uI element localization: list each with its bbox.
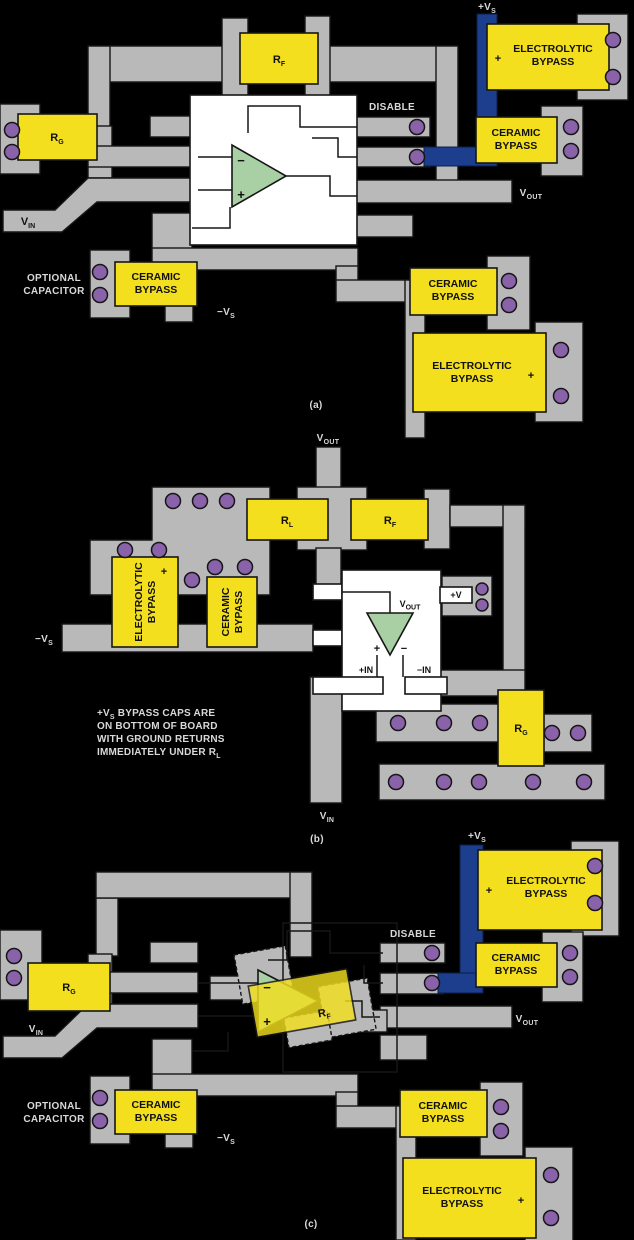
electrolytic-label-tr-c: ELECTROLYTIC — [506, 875, 586, 887]
caption-a: (a) — [309, 400, 322, 411]
noninverting-sign-b: + — [374, 643, 380, 655]
via — [606, 70, 621, 85]
via — [389, 775, 404, 790]
ceramic-label-r-c: CERAMIC — [492, 952, 541, 964]
vout-trace-a — [355, 180, 512, 203]
polarity-plus-b: + — [161, 566, 167, 578]
via — [502, 274, 517, 289]
via — [7, 949, 22, 964]
vout-trace-bottom-b — [316, 548, 341, 588]
vout-label-c: VOUT — [516, 1014, 539, 1027]
unused-pin-pad2-c — [380, 1035, 427, 1060]
note-line1: +VS BYPASS CAPS ARE — [97, 708, 215, 721]
via — [425, 946, 440, 961]
via — [476, 599, 488, 611]
neg-supply-label-a: −VS — [217, 307, 235, 320]
via — [93, 1091, 108, 1106]
neg-supply-label-b: −VS — [35, 634, 53, 647]
via — [425, 976, 440, 991]
via — [193, 494, 208, 509]
via — [93, 288, 108, 303]
neg-supply-step-horiz-a — [336, 280, 414, 302]
figure-c-board: RF − + +VS DISABLE VOUT VIN OPTIONAL CAP… — [0, 831, 619, 1240]
ic-pin-plus-in-b — [313, 677, 383, 694]
plus-v-label-b: +V — [450, 590, 461, 600]
disable-label-c: DISABLE — [390, 929, 436, 940]
via — [410, 120, 425, 135]
electrolytic-label2-br-a: BYPASS — [451, 373, 493, 385]
electrolytic-label-tr-a: ELECTROLYTIC — [513, 43, 593, 55]
caption-c: (c) — [304, 1219, 317, 1230]
ceramic-label2-r-c: BYPASS — [495, 965, 537, 977]
ic-pin-minus-in-b — [405, 677, 447, 694]
via — [5, 145, 20, 160]
via — [502, 298, 517, 313]
vout-label-a: VOUT — [520, 188, 543, 201]
via — [5, 123, 20, 138]
ceramic-label2-bl-c: BYPASS — [135, 1112, 177, 1124]
via — [410, 150, 425, 165]
ceramic-label2-r-a: BYPASS — [495, 140, 537, 152]
pcb-layout-diagram: − + +VS DISABLE VOUT OPTIONAL CAPACITOR … — [0, 0, 634, 1240]
via — [526, 775, 541, 790]
ceramic-label2-br-c: BYPASS — [422, 1113, 464, 1125]
polarity-plus-tr-c: + — [486, 885, 492, 897]
via — [238, 560, 253, 575]
via — [564, 144, 579, 159]
via — [545, 726, 560, 741]
via — [577, 775, 592, 790]
via — [118, 543, 133, 558]
electrolytic-label-br-a: ELECTROLYTIC — [432, 360, 512, 372]
ceramic-label-line2-b: BYPASS — [233, 591, 245, 633]
via — [391, 716, 406, 731]
via — [544, 1211, 559, 1226]
via — [166, 494, 181, 509]
polarity-plus-tr-a: + — [495, 53, 501, 65]
neg-supply-bar-b — [62, 624, 313, 652]
via — [554, 389, 569, 404]
vin-label-c: VIN — [29, 1024, 44, 1037]
via — [588, 859, 603, 874]
note-line4: IMMEDIATELY UNDER RL — [97, 747, 221, 760]
feedback-trace-vert-b — [503, 505, 525, 697]
ceramic-label-bl-a: CERAMIC — [132, 271, 181, 283]
neg-supply-label-c: −VS — [217, 1133, 235, 1146]
electrolytic-label-line2-b: BYPASS — [146, 581, 158, 623]
via — [472, 775, 487, 790]
inverting-sign-a: − — [237, 153, 245, 168]
via — [476, 583, 488, 595]
vin-trace-b — [310, 677, 342, 803]
pcb-layout-figure: − + +VS DISABLE VOUT OPTIONAL CAPACITOR … — [0, 0, 634, 1240]
vout-trace-c — [380, 1006, 512, 1028]
ceramic-label-br-c: CERAMIC — [419, 1100, 468, 1112]
via — [437, 716, 452, 731]
via — [473, 716, 488, 731]
inverting-sign-c: − — [263, 980, 271, 995]
pos-supply-label-c: +VS — [468, 831, 486, 844]
note-line3: WITH GROUND RETURNS — [97, 734, 225, 745]
noninverting-sign-c: + — [263, 1014, 271, 1029]
vin-label-b: VIN — [320, 811, 335, 824]
via — [208, 560, 223, 575]
optional-capacitor-label2-c: CAPACITOR — [23, 1114, 85, 1125]
ceramic-label-b: CERAMIC BYPASS — [220, 587, 245, 636]
electrolytic-label-br-c: ELECTROLYTIC — [422, 1185, 502, 1197]
unused-pin-pad-c — [150, 942, 198, 963]
via — [571, 726, 586, 741]
wire-neg-supply-c — [192, 1032, 228, 1051]
feedback-trace-drop-c — [290, 872, 312, 957]
via — [494, 1124, 509, 1139]
pos-supply-label-a: +VS — [478, 2, 496, 15]
via — [152, 543, 167, 558]
ceramic-label2-bl-a: BYPASS — [135, 284, 177, 296]
electrolytic-label2-br-c: BYPASS — [441, 1198, 483, 1210]
polarity-plus-br-c: + — [518, 1195, 524, 1207]
unused-pin-pad2-a — [355, 215, 413, 237]
electrolytic-bypass-b — [112, 557, 178, 647]
vout-label-b: VOUT — [317, 433, 340, 446]
electrolytic-label2-tr-c: BYPASS — [525, 888, 567, 900]
caption-b: (b) — [310, 834, 324, 845]
noninverting-sign-a: + — [237, 187, 245, 202]
ic-pin-vout-b — [313, 584, 342, 600]
ceramic-label2-br-a: BYPASS — [432, 291, 474, 303]
via — [185, 573, 200, 588]
bypass-note: +VS BYPASS CAPS ARE ON BOTTOM OF BOARD W… — [97, 708, 225, 760]
disable-label-a: DISABLE — [369, 102, 415, 113]
optional-capacitor-label2-a: CAPACITOR — [23, 286, 85, 297]
via — [544, 1168, 559, 1183]
via — [437, 775, 452, 790]
electrolytic-label-line1-b: ELECTROLYTIC — [133, 562, 145, 642]
via — [554, 343, 569, 358]
feedback-trace-left-leg-c — [96, 898, 118, 956]
ceramic-label-line1-b: CERAMIC — [220, 587, 232, 636]
minus-in-label-b: −IN — [417, 665, 431, 675]
via — [494, 1100, 509, 1115]
optional-capacitor-label-c: OPTIONAL — [27, 1101, 81, 1112]
via — [606, 33, 621, 48]
via — [564, 120, 579, 135]
feedback-trace-top-left-a — [88, 46, 240, 82]
feedback-trace-top-c — [96, 872, 312, 898]
ceramic-label-bl-c: CERAMIC — [132, 1099, 181, 1111]
via — [563, 970, 578, 985]
plus-in-label-b: +IN — [359, 665, 373, 675]
via — [563, 946, 578, 961]
optional-capacitor-label-a: OPTIONAL — [27, 273, 81, 284]
via — [588, 896, 603, 911]
ceramic-label-br-a: CERAMIC — [429, 278, 478, 290]
ceramic-bypass-b — [207, 577, 257, 647]
via — [93, 1114, 108, 1129]
electrolytic-label2-tr-a: BYPASS — [532, 56, 574, 68]
via — [220, 494, 235, 509]
via — [7, 971, 22, 986]
ceramic-label-r-a: CERAMIC — [492, 127, 541, 139]
figure-a-board: − + +VS DISABLE VOUT OPTIONAL CAPACITOR … — [0, 2, 628, 438]
ic-pin-negv-b — [313, 630, 342, 646]
figure-b-board: + − VOUT +IN −IN +V VOUT −VS VIN (b) RL … — [35, 433, 605, 845]
ground-pad-row2-b — [379, 764, 605, 800]
inverting-sign-b: − — [401, 643, 407, 655]
polarity-plus-br-a: + — [528, 370, 534, 382]
inverting-input-trace-a — [88, 146, 198, 167]
note-line2: ON BOTTOM OF BOARD — [97, 721, 218, 732]
via — [93, 265, 108, 280]
